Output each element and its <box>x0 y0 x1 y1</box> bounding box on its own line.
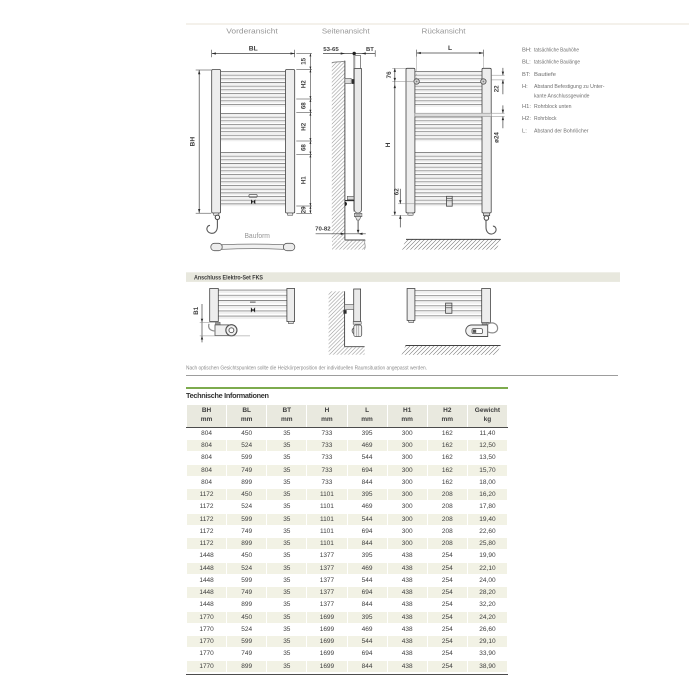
svg-text:BL:: BL: <box>522 60 531 66</box>
svg-text:tatsächliche Baulänge: tatsächliche Baulänge <box>534 60 580 66</box>
svg-text:H2:: H2: <box>522 116 531 122</box>
svg-text:ø24: ø24 <box>493 132 500 143</box>
svg-text:BH: BH <box>190 137 197 147</box>
svg-text:B1: B1 <box>193 306 200 314</box>
svg-text:H2: H2 <box>300 122 307 130</box>
svg-text:BH:: BH: <box>522 48 532 54</box>
svg-text:Rohrblock: Rohrblock <box>534 116 557 122</box>
svg-text:Abstand Befestigung zu Unter-: Abstand Befestigung zu Unter- <box>534 84 605 90</box>
svg-text:22: 22 <box>494 85 501 92</box>
svg-text:L:: L: <box>522 128 527 134</box>
svg-text:70-82: 70-82 <box>315 227 331 233</box>
svg-text:Rückansicht: Rückansicht <box>422 27 466 36</box>
svg-text:H:: H: <box>522 84 528 90</box>
svg-text:BT: BT <box>366 47 374 53</box>
svg-text:Bautiefe: Bautiefe <box>534 72 556 78</box>
svg-text:68: 68 <box>300 144 307 151</box>
svg-text:Abstand der Bohrlöcher: Abstand der Bohrlöcher <box>534 128 589 134</box>
svg-text:53-65: 53-65 <box>323 47 339 53</box>
svg-text:Seitenansicht: Seitenansicht <box>322 27 370 36</box>
svg-text:68: 68 <box>300 102 307 109</box>
svg-text:62: 62 <box>393 188 400 195</box>
svg-text:BT:: BT: <box>522 72 531 78</box>
svg-text:29: 29 <box>300 206 307 213</box>
svg-text:tatsächliche Bauhöhe: tatsächliche Bauhöhe <box>534 48 579 54</box>
svg-text:L: L <box>448 45 452 52</box>
svg-text:15: 15 <box>300 57 307 64</box>
svg-text:BL: BL <box>249 46 258 53</box>
svg-text:kante Anschlussgewinde: kante Anschlussgewinde <box>534 93 590 99</box>
svg-text:Rohrblock unten: Rohrblock unten <box>534 104 572 110</box>
svg-text:76: 76 <box>386 71 393 78</box>
svg-text:H: H <box>385 142 392 147</box>
svg-text:H1:: H1: <box>522 104 531 110</box>
svg-text:Vorderansicht: Vorderansicht <box>226 27 278 36</box>
svg-text:Nach optischen Gesichtspunkten: Nach optischen Gesichtspunkten sollte di… <box>186 365 427 371</box>
svg-text:H1: H1 <box>300 176 307 184</box>
svg-text:H2: H2 <box>300 80 307 88</box>
svg-text:Anschluss Elektro-Set FKS: Anschluss Elektro-Set FKS <box>194 274 263 281</box>
svg-text:Bauform: Bauform <box>244 231 270 240</box>
